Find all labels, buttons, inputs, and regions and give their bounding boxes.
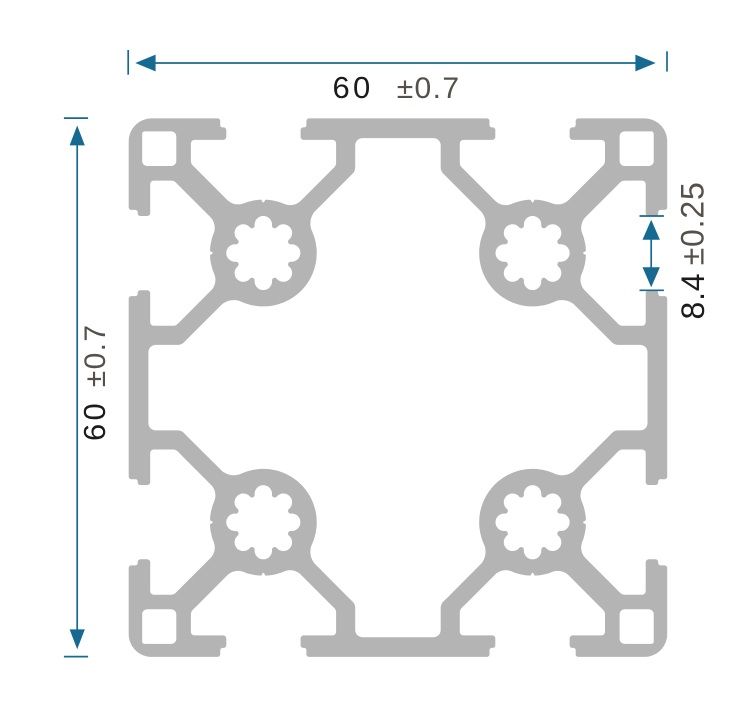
svg-text:±0.7: ±0.7 — [79, 324, 112, 388]
svg-text:±0.7: ±0.7 — [397, 72, 461, 105]
svg-text:60: 60 — [333, 70, 374, 105]
svg-text:±0.25: ±0.25 — [675, 181, 711, 265]
svg-text:60: 60 — [77, 400, 112, 441]
svg-text:8.4: 8.4 — [675, 273, 711, 320]
